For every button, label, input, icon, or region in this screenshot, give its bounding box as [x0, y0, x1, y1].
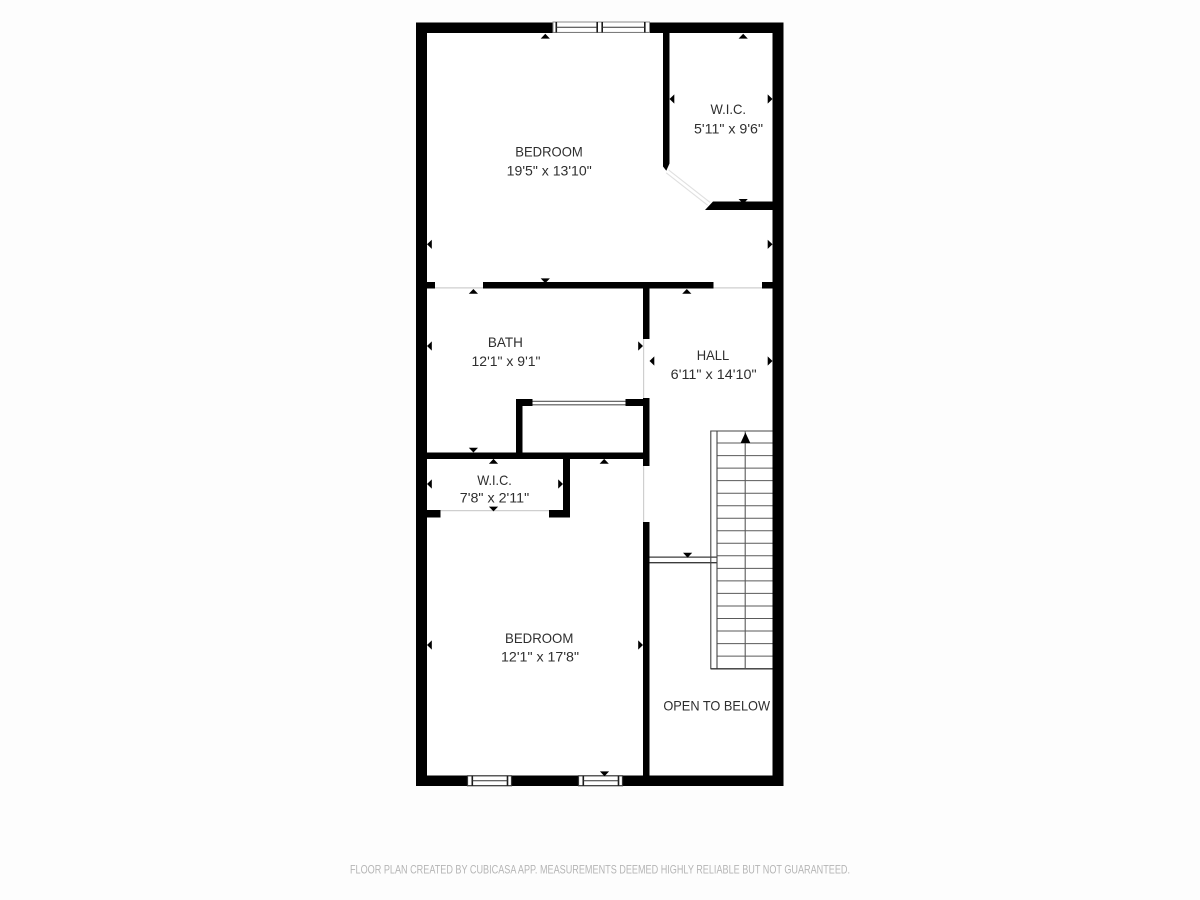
svg-text:BATH: BATH [488, 335, 523, 350]
svg-text:HALL: HALL [697, 348, 730, 363]
svg-text:12'1" x 17'8": 12'1" x 17'8" [501, 649, 579, 664]
svg-text:OPEN TO BELOW: OPEN TO BELOW [663, 699, 770, 714]
svg-text:5'11" x 9'6": 5'11" x 9'6" [694, 121, 763, 136]
svg-text:W.I.C.: W.I.C. [711, 102, 747, 117]
svg-text:W.I.C.: W.I.C. [477, 473, 512, 488]
svg-text:BEDROOM: BEDROOM [505, 631, 573, 646]
svg-text:19'5" x 13'10": 19'5" x 13'10" [507, 164, 592, 179]
svg-text:6'11" x 14'10": 6'11" x 14'10" [671, 367, 757, 382]
svg-text:BEDROOM: BEDROOM [515, 145, 583, 160]
svg-text:7'8" x 2'11": 7'8" x 2'11" [460, 491, 529, 506]
svg-text:FLOOR PLAN CREATED BY CUBICASA: FLOOR PLAN CREATED BY CUBICASA APP. MEAS… [350, 863, 850, 877]
svg-text:12'1" x 9'1": 12'1" x 9'1" [472, 354, 541, 369]
